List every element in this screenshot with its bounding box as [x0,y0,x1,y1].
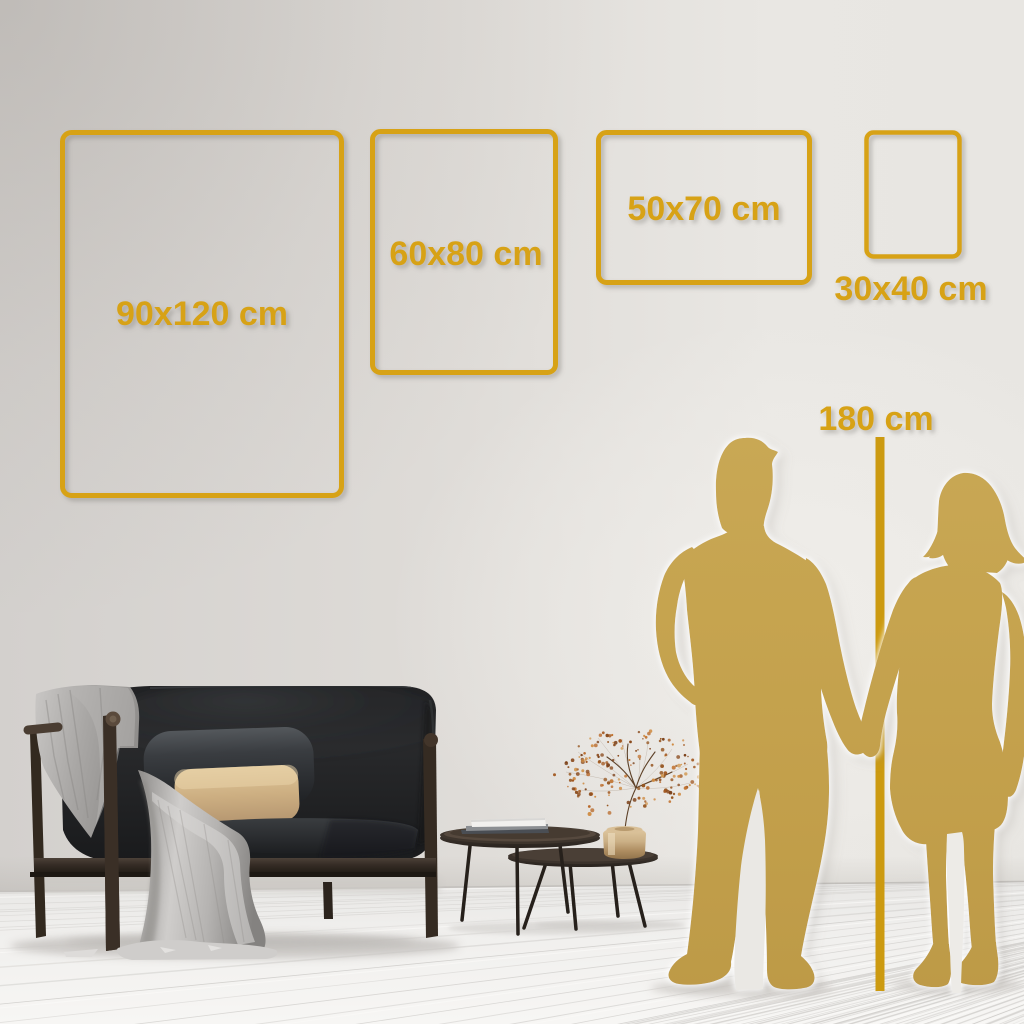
svg-text:180 cm: 180 cm [818,400,933,438]
svg-text:30x40 cm: 30x40 cm [834,270,987,308]
svg-text:50x70 cm: 50x70 cm [627,190,780,228]
svg-text:60x80 cm: 60x80 cm [389,235,542,273]
svg-text:90x120 cm: 90x120 cm [116,295,288,333]
